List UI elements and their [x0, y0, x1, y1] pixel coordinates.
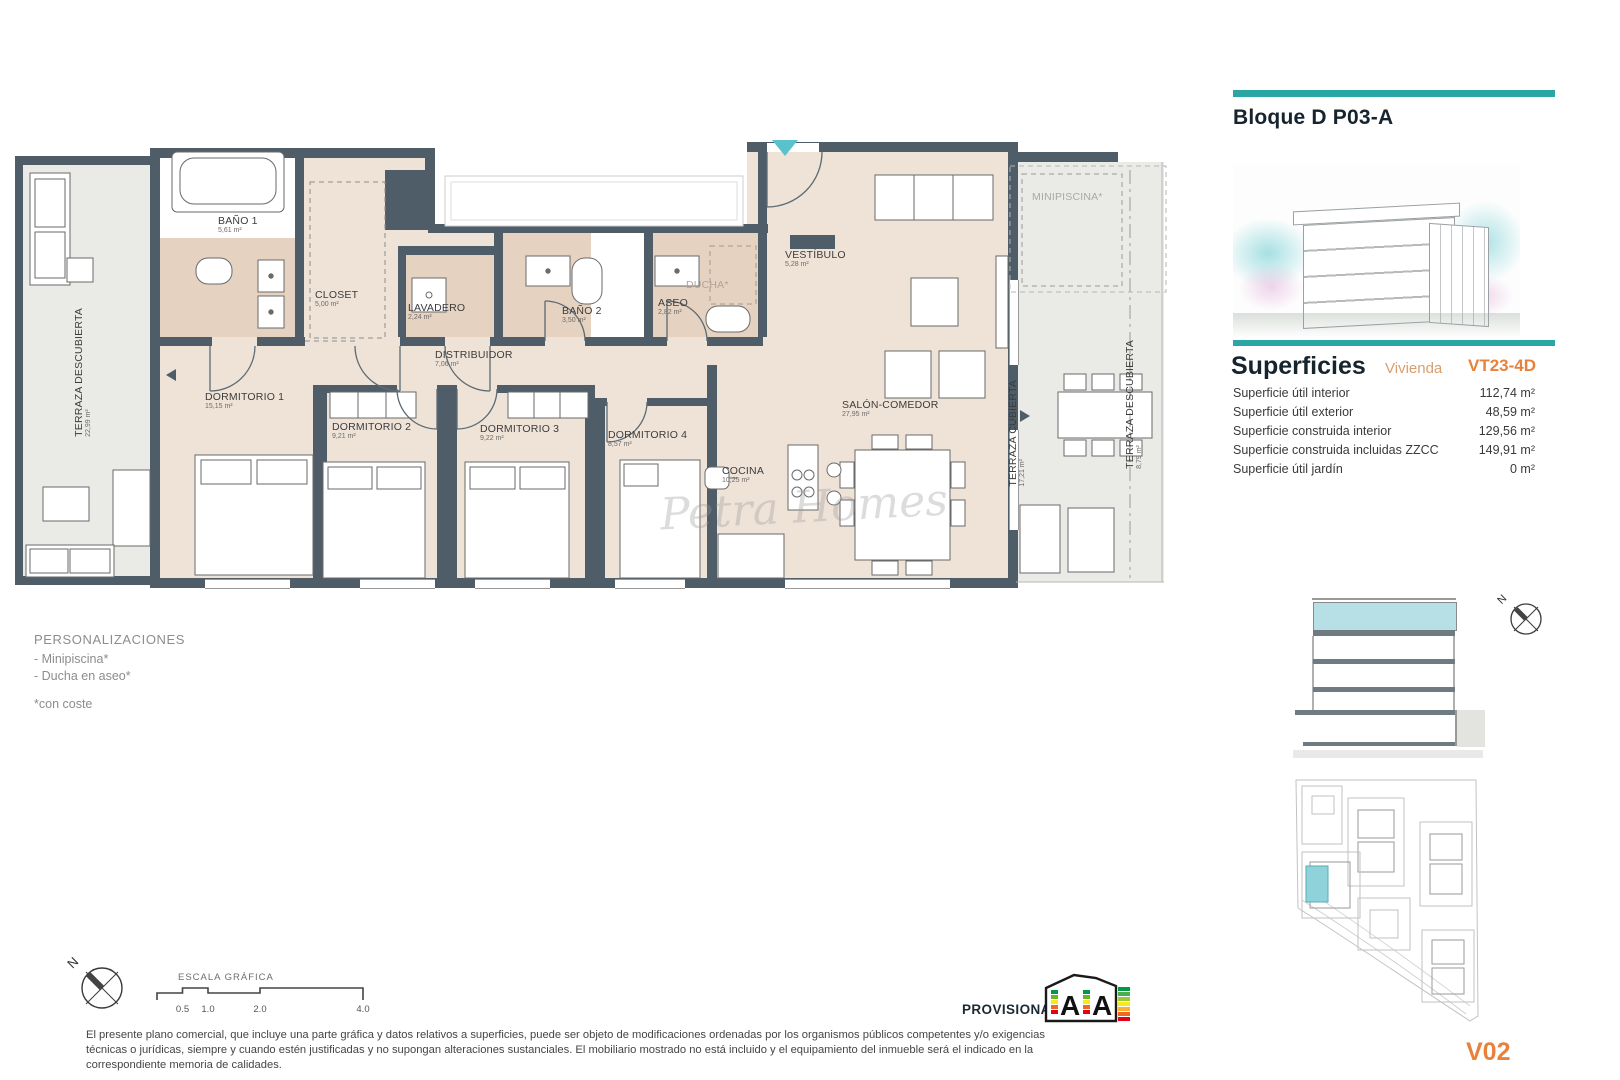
room-label-ducha: DUCHA*: [686, 280, 729, 291]
room-label-closet: CLOSET5,00 m²: [315, 290, 358, 308]
personalizaciones-item: - Minipiscina*: [34, 652, 108, 666]
room-label-dormitorio4: DORMITORIO 48,57 m²: [608, 430, 687, 448]
room-label-dormitorio3: DORMITORIO 39,22 m²: [480, 424, 559, 442]
row-label: Superficie construida interior: [1233, 422, 1391, 441]
section-ground-slab: [1295, 710, 1457, 715]
energy-rating-icon: A A: [1042, 970, 1134, 1026]
superficies-type: Vivienda: [1385, 360, 1442, 377]
teal-rule-top: [1233, 90, 1555, 97]
site-road: [1310, 892, 1470, 1006]
section-roofline: [1312, 598, 1456, 600]
section-slab: [1313, 659, 1455, 664]
energy-letter: A: [1092, 990, 1112, 1021]
row-value: 112,74 m²: [1480, 384, 1535, 403]
room-label-salon: SALÓN-COMEDOR27,95 m²: [842, 400, 939, 418]
render-greenery: [1233, 313, 1520, 337]
personalizaciones-title: PERSONALIZACIONES: [34, 632, 185, 647]
version-label: V02: [1466, 1038, 1510, 1067]
compass-icon: N: [62, 946, 136, 1022]
superficies-table: Superficie útil interior112,74 m² Superf…: [1233, 384, 1535, 479]
row-label: Superficie útil jardín: [1233, 460, 1343, 479]
left-arrow-icon: [166, 369, 176, 381]
compass-n-label: N: [64, 954, 81, 971]
room-label-aseo: ASEO2,82 m²: [658, 298, 688, 316]
row-label: Superficie construida incluidas ZZCC: [1233, 441, 1439, 460]
room-label-terraza-left: TERRAZA DESCUBIERTA22,99 m²: [74, 308, 92, 437]
room-label-bano1: BAÑO 15,61 m²: [218, 216, 258, 234]
row-label: Superficie útil exterior: [1233, 403, 1353, 422]
entrance-marker-icon: [772, 140, 798, 156]
site-highlight-block: [1306, 866, 1328, 902]
section-slab: [1313, 687, 1455, 692]
room-label-dormitorio1: DORMITORIO 115,15 m²: [205, 392, 284, 410]
room-label-lavadero: LAVADERO2,24 m²: [408, 303, 465, 321]
table-row: Superficie útil exterior48,59 m²: [1233, 403, 1535, 422]
unit-code: VT23-4D: [1468, 356, 1536, 376]
scale-bar-line: [157, 988, 363, 1000]
section-highlight-floor: [1313, 602, 1457, 631]
table-row: Superficie útil jardín0 m²: [1233, 460, 1535, 479]
bano1-fixtures: [172, 152, 284, 328]
section-base-line: [1303, 742, 1457, 746]
aseo-fixtures: [655, 256, 750, 332]
section-diagram-anchor: [1312, 596, 1313, 597]
room-label-cocina: COCINA10,25 m²: [722, 466, 764, 484]
scale-tick: 4.0: [356, 1004, 369, 1015]
scale-bar: 0.5 1.0 2.0 4.0: [155, 984, 370, 1021]
row-value: 48,59 m²: [1486, 403, 1535, 422]
scale-bar-title: ESCALA GRÁFICA: [178, 972, 274, 983]
site-road: [1302, 900, 1466, 1014]
disclaimer-text: El presente plano comercial, que incluye…: [86, 1028, 1086, 1072]
room-label-distribuidor: DISTRIBUIDOR7,06 m²: [435, 350, 513, 368]
personalizaciones-footnote: *con coste: [34, 697, 92, 711]
floor-plan: TERRAZA DESCUBIERTA22,99 m² BAÑO 15,61 m…: [10, 140, 1180, 605]
building-side: [1429, 223, 1489, 327]
site-plan: [1240, 770, 1500, 1060]
dormitorio3-furniture: [465, 392, 588, 578]
personalizaciones-item: - Ducha en aseo*: [34, 669, 131, 683]
dormitorio1-furniture: [195, 455, 313, 575]
dormitorio2-furniture: [323, 392, 425, 578]
watercolor-blob: [1239, 263, 1303, 311]
row-value: 0 m²: [1510, 460, 1535, 479]
plan-overlay: [10, 140, 1180, 605]
bano2-fixtures: [526, 256, 602, 304]
room-label-vestibulo: VESTÍBULO5,28 m²: [785, 250, 846, 268]
section-wall-line: [1453, 636, 1455, 712]
energy-letter: A: [1060, 990, 1080, 1021]
teal-rule-bottom: [1233, 340, 1555, 346]
room-label-minipiscina: MINIPISCINA*: [1032, 192, 1103, 203]
superficies-title: Superficies: [1231, 352, 1366, 381]
ground-strip: [1293, 750, 1483, 758]
compass-n-label: N: [1496, 593, 1509, 607]
floor-plan-page: { "plan": { "watermark": "Petra Homes", …: [0, 0, 1620, 1080]
section-slab: [1313, 630, 1455, 636]
table-row: Superficie construida incluidas ZZCC149,…: [1233, 441, 1535, 460]
room-label-dormitorio2: DORMITORIO 29,21 m²: [332, 422, 411, 440]
section-ground-shade: [1457, 710, 1485, 747]
block-title: Bloque D P03-A: [1233, 106, 1393, 130]
row-value: 149,91 m²: [1479, 441, 1535, 460]
scale-tick: 0.5: [176, 1004, 189, 1015]
room-label-terraza-right: TERRAZA DESCUBIERTA8,79 m²: [1125, 340, 1143, 469]
energy-scale-bars: [1118, 987, 1130, 1021]
room-label-bano2: BAÑO 23,50 m²: [562, 306, 602, 324]
table-row: Superficie útil interior112,74 m²: [1233, 384, 1535, 403]
scale-tick: 1.0: [201, 1004, 214, 1015]
table-row: Superficie construida interior129,56 m²: [1233, 422, 1535, 441]
row-value: 129,56 m²: [1479, 422, 1535, 441]
section-wall-line: [1312, 636, 1314, 712]
compass-icon: N: [1496, 588, 1552, 644]
facade-overhang: [445, 176, 743, 226]
row-label: Superficie útil interior: [1233, 384, 1350, 403]
scale-tick: 2.0: [253, 1004, 266, 1015]
room-label-terraza-cubierta: TERRAZA CUBIERTA17,21 m²: [1008, 380, 1026, 487]
building-render: [1233, 163, 1520, 337]
